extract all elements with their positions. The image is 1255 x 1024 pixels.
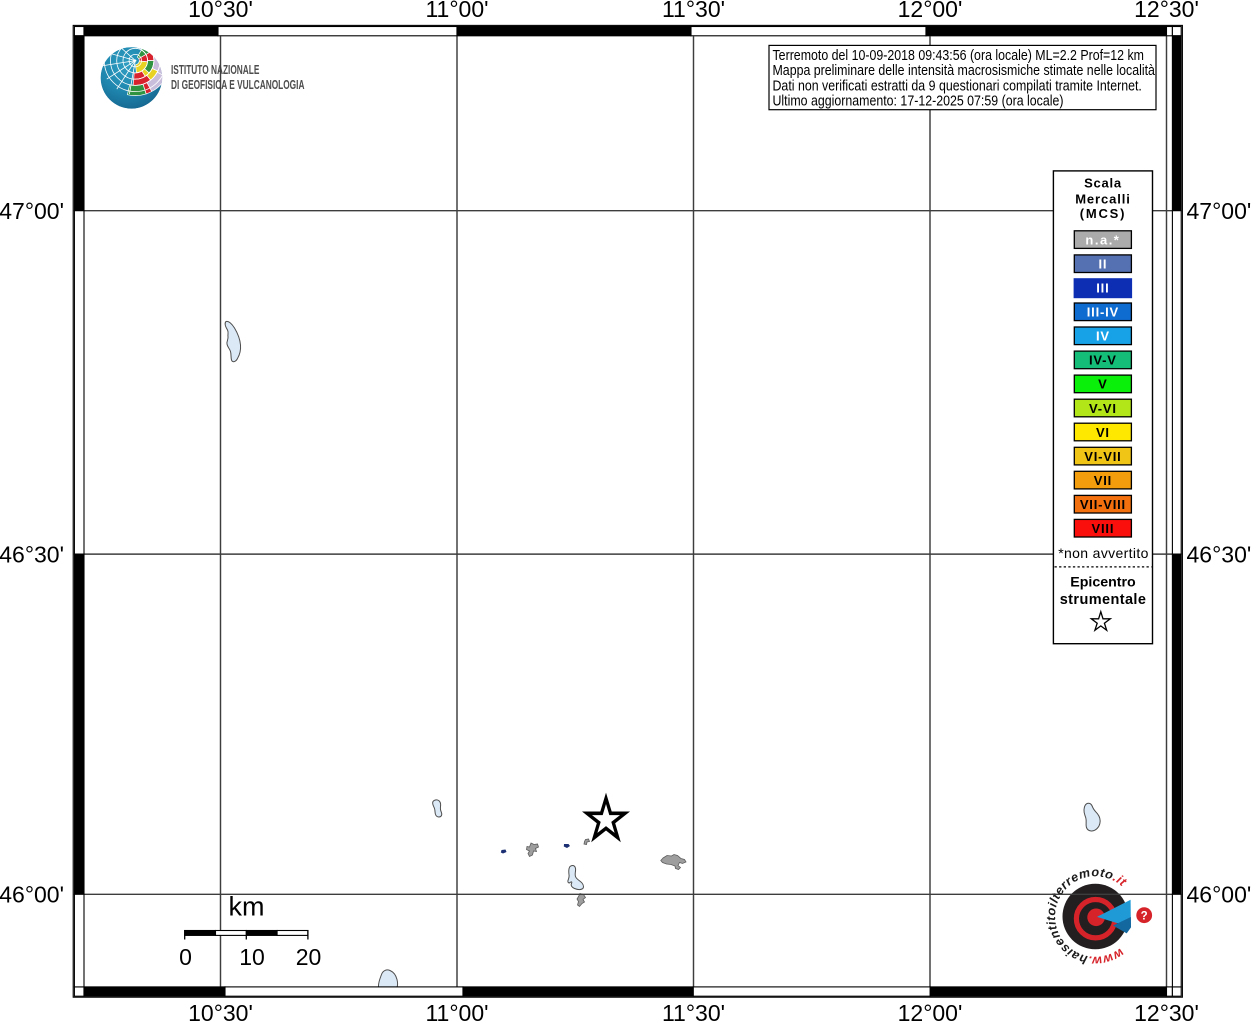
svg-text:12°30': 12°30'	[1134, 1000, 1199, 1024]
svg-text:0: 0	[179, 944, 192, 970]
svg-text:II: II	[1098, 257, 1107, 272]
svg-text:VII: VII	[1094, 473, 1112, 488]
svg-text:Dati non verificati estratti d: Dati non verificati estratti da 9 questi…	[773, 77, 1142, 93]
svg-text:47°00': 47°00'	[0, 198, 64, 224]
svg-text:strumentale: strumentale	[1060, 592, 1147, 608]
svg-text:VIII: VIII	[1092, 521, 1115, 536]
svg-text:11°00': 11°00'	[425, 0, 488, 22]
svg-text:V-VI: V-VI	[1089, 401, 1117, 416]
svg-text:47°00': 47°00'	[1187, 198, 1252, 224]
svg-text:Epicentro: Epicentro	[1070, 574, 1136, 590]
svg-text:Terremoto del 10-09-2018 09:43: Terremoto del 10-09-2018 09:43:56 (ora l…	[773, 47, 1144, 63]
svg-text:*non avvertito: *non avvertito	[1058, 545, 1149, 561]
svg-text:46°00': 46°00'	[0, 882, 64, 908]
svg-text:Scala: Scala	[1084, 176, 1122, 191]
svg-text:ISTITUTO NAZIONALE: ISTITUTO NAZIONALE	[171, 63, 259, 77]
svg-text:12°30': 12°30'	[1134, 0, 1199, 22]
svg-text:46°30': 46°30'	[1187, 541, 1252, 567]
svg-text:12°00': 12°00'	[898, 1000, 963, 1024]
svg-text:10°30': 10°30'	[188, 0, 253, 22]
svg-text:V: V	[1098, 377, 1107, 392]
svg-text:?: ?	[1141, 911, 1148, 923]
svg-text:Ultimo aggiornamento: 17-12-20: Ultimo aggiornamento: 17-12-2025 07:59 (…	[773, 93, 1064, 109]
svg-text:IV-V: IV-V	[1089, 353, 1117, 368]
svg-text:km: km	[229, 892, 265, 922]
svg-text:11°30': 11°30'	[662, 1000, 725, 1024]
svg-text:Mercalli: Mercalli	[1075, 191, 1131, 206]
svg-text:VII-VIII: VII-VIII	[1080, 497, 1126, 512]
svg-text:46°30': 46°30'	[0, 541, 64, 567]
svg-text:20: 20	[296, 944, 322, 970]
svg-text:DI GEOFISICA E VULCANOLOGIA: DI GEOFISICA E VULCANOLOGIA	[171, 78, 305, 92]
svg-text:IV: IV	[1096, 329, 1110, 344]
svg-text:III: III	[1096, 281, 1109, 296]
svg-text:III-IV: III-IV	[1087, 305, 1119, 320]
svg-text:11°30': 11°30'	[662, 0, 725, 22]
svg-text:VI: VI	[1096, 425, 1110, 440]
svg-text:12°00': 12°00'	[898, 0, 963, 22]
svg-text:n.a.*: n.a.*	[1085, 232, 1120, 247]
svg-text:(MCS): (MCS)	[1080, 206, 1127, 221]
svg-text:10°30': 10°30'	[188, 1000, 253, 1024]
svg-text:VI-VII: VI-VII	[1084, 449, 1121, 464]
svg-text:11°00': 11°00'	[425, 1000, 488, 1024]
svg-text:Mappa preliminare delle intens: Mappa preliminare delle intensità macros…	[773, 62, 1156, 78]
svg-text:10: 10	[239, 944, 265, 970]
svg-text:46°00': 46°00'	[1187, 882, 1252, 908]
